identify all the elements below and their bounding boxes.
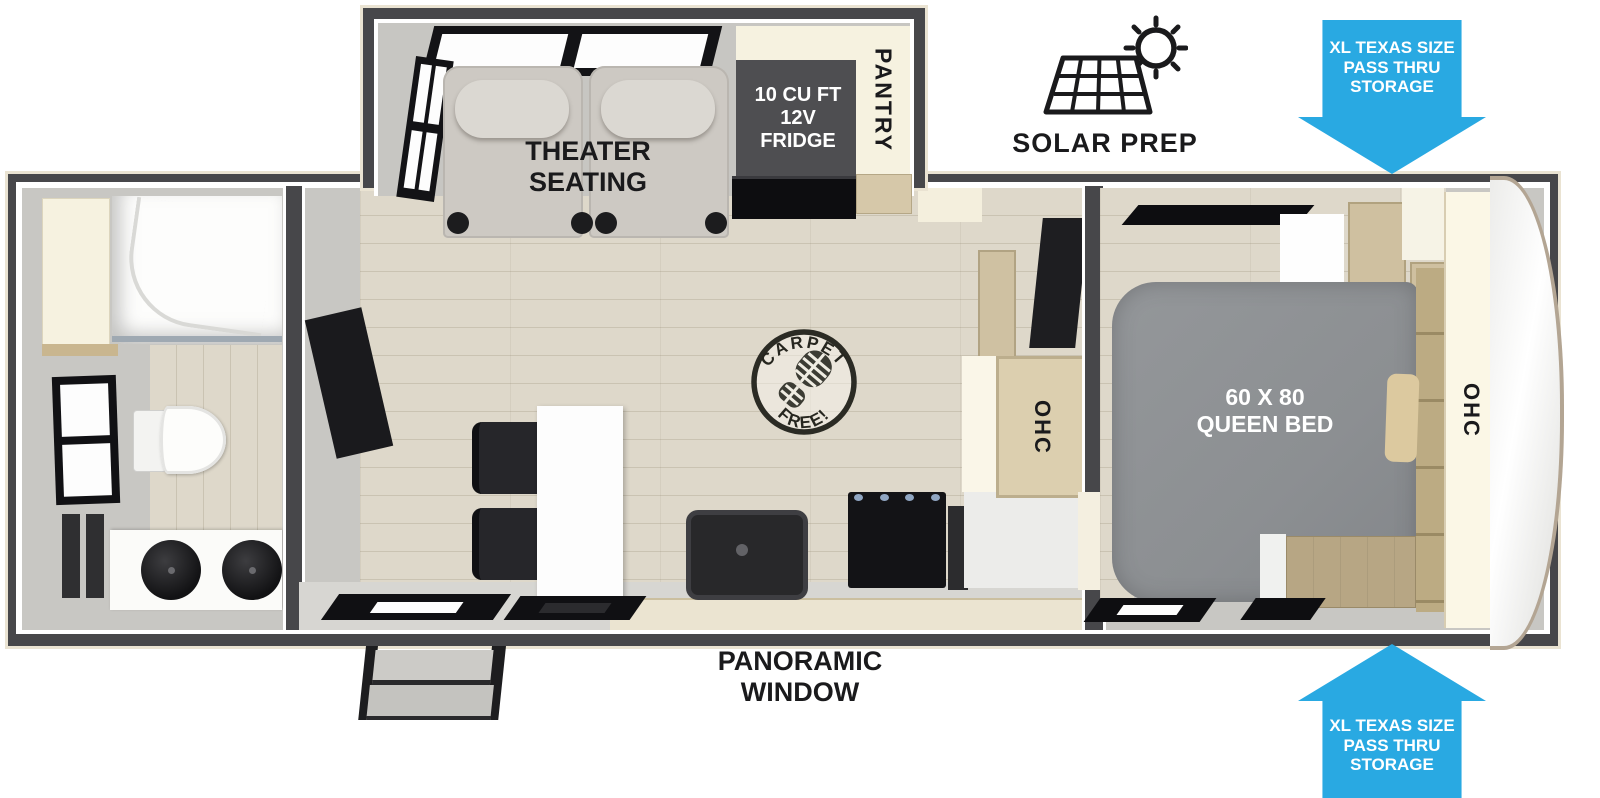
theater-seat-left-cushion xyxy=(455,80,569,138)
theater-seating-label: THEATER SEATING xyxy=(448,136,728,198)
pass-thru-top-label: XL TEXAS SIZE PASS THRU STORAGE xyxy=(1298,38,1486,97)
counter-below-pantry xyxy=(918,188,982,222)
entry-step-top xyxy=(372,650,494,685)
dinette-chair-bottom xyxy=(472,508,547,580)
bathroom-living-wall xyxy=(283,186,305,630)
rv-floorplan-canvas: OHC 60 X 80 QUEEN BED OHC xyxy=(0,0,1600,798)
pass-thru-arrow-top: XL TEXAS SIZE PASS THRU STORAGE xyxy=(1298,20,1486,174)
fridge-label: 10 CU FT 12V FRIDGE xyxy=(736,84,860,153)
bedroom-overhead-cabinet-a xyxy=(1348,202,1406,294)
cupholder-1 xyxy=(447,212,469,234)
bathroom-cabinet-shelf xyxy=(42,344,118,356)
bathroom-window xyxy=(52,375,120,505)
stove-cooktop xyxy=(848,492,946,588)
living-window-right xyxy=(504,596,647,620)
living-window-left xyxy=(321,594,511,620)
carpet-free-stamp: CARPET FREE! xyxy=(748,326,860,438)
cupholder-2 xyxy=(571,212,593,234)
panoramic-window-sill xyxy=(610,598,1082,630)
bedroom-window-left-pane xyxy=(1116,605,1183,615)
kitchen-sink xyxy=(686,510,808,600)
kitchen-side-counter xyxy=(962,356,998,492)
dinette-chair-top xyxy=(472,422,547,494)
bed-headboard xyxy=(1416,268,1444,612)
dinette-table xyxy=(537,406,623,606)
bathroom-window-pane-top xyxy=(60,383,110,437)
pantry: PANTRY xyxy=(856,26,910,174)
kitchen-corner-counter xyxy=(964,488,1082,588)
shower-glass-door xyxy=(112,336,282,342)
pantry-label: PANTRY xyxy=(856,26,910,174)
ohc-kitchen-label: OHC xyxy=(999,359,1085,495)
ohc-cabinet-kitchen: OHC xyxy=(996,356,1088,498)
fridge-front xyxy=(732,176,856,219)
slideout-side-window-pane-4 xyxy=(418,132,437,191)
vanity-sink-right xyxy=(222,540,282,600)
bathroom-window-pane-bottom xyxy=(62,443,112,497)
cupholder-4 xyxy=(705,212,727,234)
slideout-top-window-pane-left xyxy=(434,34,568,68)
kitchen-sink-drain xyxy=(736,544,748,556)
slideout-top-window-pane-right xyxy=(574,34,708,68)
entry-steps xyxy=(358,646,506,720)
fridge-top-cabinet xyxy=(736,26,860,60)
underbed-cabinet-white xyxy=(1260,534,1286,598)
solar-panel-sun-icon xyxy=(1038,14,1188,122)
bedroom-window-left xyxy=(1084,598,1217,622)
pass-thru-arrow-bottom: XL TEXAS SIZE PASS THRU STORAGE xyxy=(1298,644,1486,798)
theater-seat-right-cushion xyxy=(601,80,715,138)
vanity-sink-left xyxy=(141,540,201,600)
queen-bed-label: 60 X 80 QUEEN BED xyxy=(1112,384,1418,438)
panoramic-window-label: PANORAMIC WINDOW xyxy=(650,646,950,708)
bathroom-tall-cabinet-b xyxy=(86,514,104,598)
entry-step-bottom xyxy=(366,685,494,720)
solar-prep-label: SOLAR PREP xyxy=(975,128,1235,159)
stove-burner-knobs xyxy=(854,494,940,502)
living-window-left-pane xyxy=(370,602,464,613)
bed-pillow xyxy=(1384,373,1419,462)
pass-thru-bottom-label: XL TEXAS SIZE PASS THRU STORAGE xyxy=(1298,716,1486,775)
bathroom-tall-cabinet-a xyxy=(62,514,80,598)
ohc-front-label: OHC xyxy=(1446,192,1496,628)
kitchen-upper-cabinet-tan xyxy=(978,250,1016,362)
bathroom-cabinet xyxy=(42,198,110,346)
pantry-base-cabinet xyxy=(856,174,912,214)
bedroom-corner-shelf xyxy=(1402,188,1444,260)
living-window-right-pane xyxy=(538,603,611,613)
ohc-cabinet-front: OHC xyxy=(1444,192,1496,628)
cupholder-3 xyxy=(595,212,617,234)
